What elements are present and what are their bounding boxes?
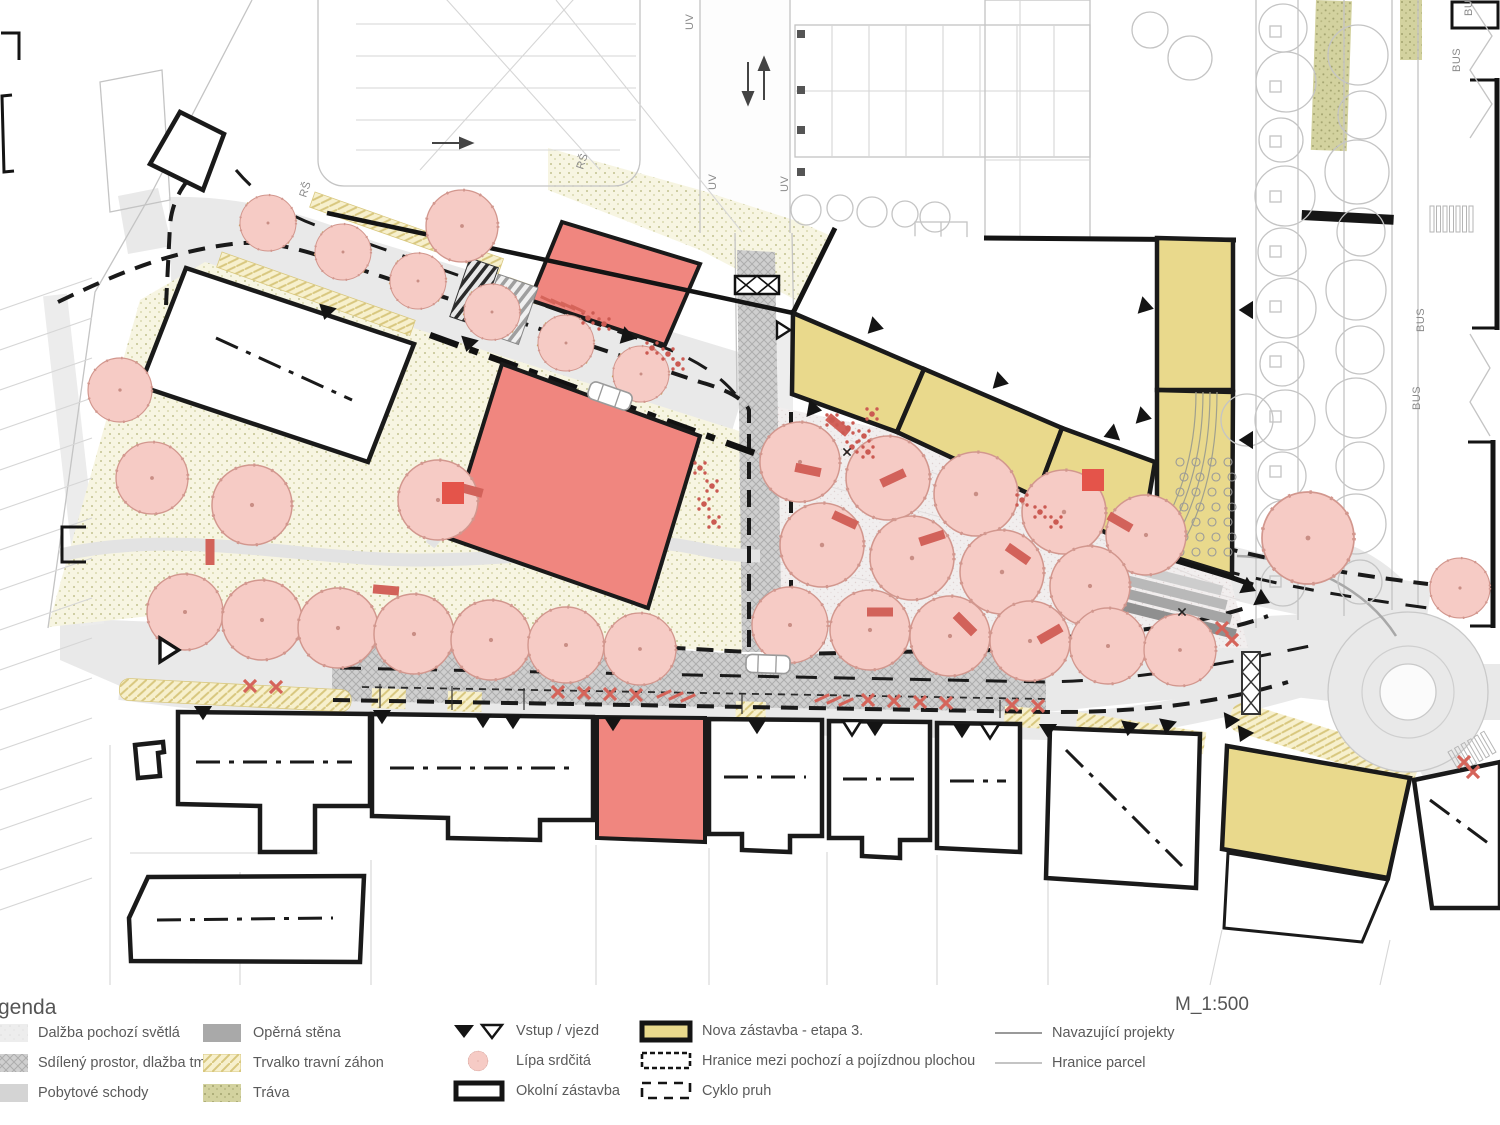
legend-item-linden: Lípa srdčitá [452, 1050, 591, 1072]
legend-label: Cyklo pruh [702, 1083, 771, 1099]
svg-text:RŠ: RŠ [296, 179, 313, 199]
legend-item-paving-dark: Sdílený prostor, dlažba tmavá [0, 1052, 229, 1074]
legend-label: Pobytové schody [38, 1085, 148, 1101]
legend-label: Navazující projekty [1052, 1025, 1175, 1041]
legend-item-boundary: Hranice mezi pochozí a pojízdnou plochou [638, 1050, 975, 1072]
legend-item-bike-lane: Cyklo pruh [638, 1080, 771, 1102]
legend-label: Dalžba pochozí světlá [38, 1025, 180, 1041]
svg-text:BUS: BUS [1463, 0, 1475, 16]
svg-text:BUS: BUS [1415, 308, 1427, 332]
legend-label: Opěrná stěna [253, 1025, 341, 1041]
site-plan-sheet: BUSBUSBUSBUSUVUVUVRŠRŠ genda M_1:500 Dal… [0, 0, 1500, 1125]
legend-item-steps: Pobytové schody [0, 1082, 148, 1104]
legend-label: Lípa srdčitá [516, 1053, 591, 1069]
wall-swatch [203, 1024, 241, 1042]
legend-label: Trvalko travní záhon [253, 1055, 384, 1071]
legend-item-perennial: Trvalko travní záhon [203, 1052, 384, 1074]
scale-label: M_1:500 [1175, 994, 1249, 1016]
legend-item-new-stage3: Nova zástavba - etapa 3. [638, 1020, 863, 1042]
svg-text:BUS: BUS [1411, 386, 1423, 410]
legend-title: genda [0, 996, 56, 1020]
legend-item-existing: Okolní zástavba [452, 1080, 620, 1102]
bowtie-marker [735, 276, 779, 294]
legend-item-parcel: Hranice parcel [995, 1052, 1146, 1074]
legend-label: Tráva [253, 1085, 290, 1101]
paving-dark-swatch [0, 1054, 28, 1072]
legend-item-grass: Tráva [203, 1082, 290, 1104]
svg-text:UV: UV [707, 174, 719, 190]
legend-item-wall: Opěrná stěna [203, 1022, 341, 1044]
bike-lane-icon [638, 1080, 694, 1102]
grass-swatch [203, 1084, 241, 1102]
paving-light-swatch [0, 1024, 28, 1042]
legend-label: Hranice mezi pochozí a pojízdnou plochou [702, 1053, 975, 1069]
legend-label: Nova zástavba - etapa 3. [702, 1023, 863, 1039]
legend-item-paving-light: Dalžba pochozí světlá [0, 1022, 180, 1044]
boundary-icon [638, 1050, 694, 1072]
plan-canvas: BUSBUSBUSBUSUVUVUVRŠRŠ [0, 0, 1500, 995]
legend-label: Vstup / vjezd [516, 1023, 599, 1039]
legend-label: Sdílený prostor, dlažba tmavá [38, 1055, 229, 1071]
existing-building-icon [452, 1080, 506, 1102]
stair-crossing [1242, 652, 1260, 714]
svg-text:UV: UV [684, 14, 696, 30]
legend-item-entry: Vstup / vjezd [452, 1020, 599, 1042]
parcel-line-icon [995, 1062, 1042, 1064]
steps-swatch [0, 1084, 28, 1102]
perennial-swatch [203, 1054, 241, 1072]
svg-text:BUS: BUS [1451, 48, 1463, 72]
legend: genda M_1:500 Dalžba pochozí světlá Sdíl… [0, 990, 1500, 1125]
related-line-icon [995, 1032, 1042, 1034]
legend-label: Hranice parcel [1052, 1055, 1146, 1071]
new-building-icon [638, 1019, 694, 1043]
linden-icon [452, 1050, 506, 1072]
legend-label: Okolní zástavba [516, 1083, 620, 1099]
svg-text:UV: UV [779, 176, 791, 192]
entry-icon [452, 1022, 506, 1040]
legend-item-related-projects: Navazující projekty [995, 1022, 1175, 1044]
